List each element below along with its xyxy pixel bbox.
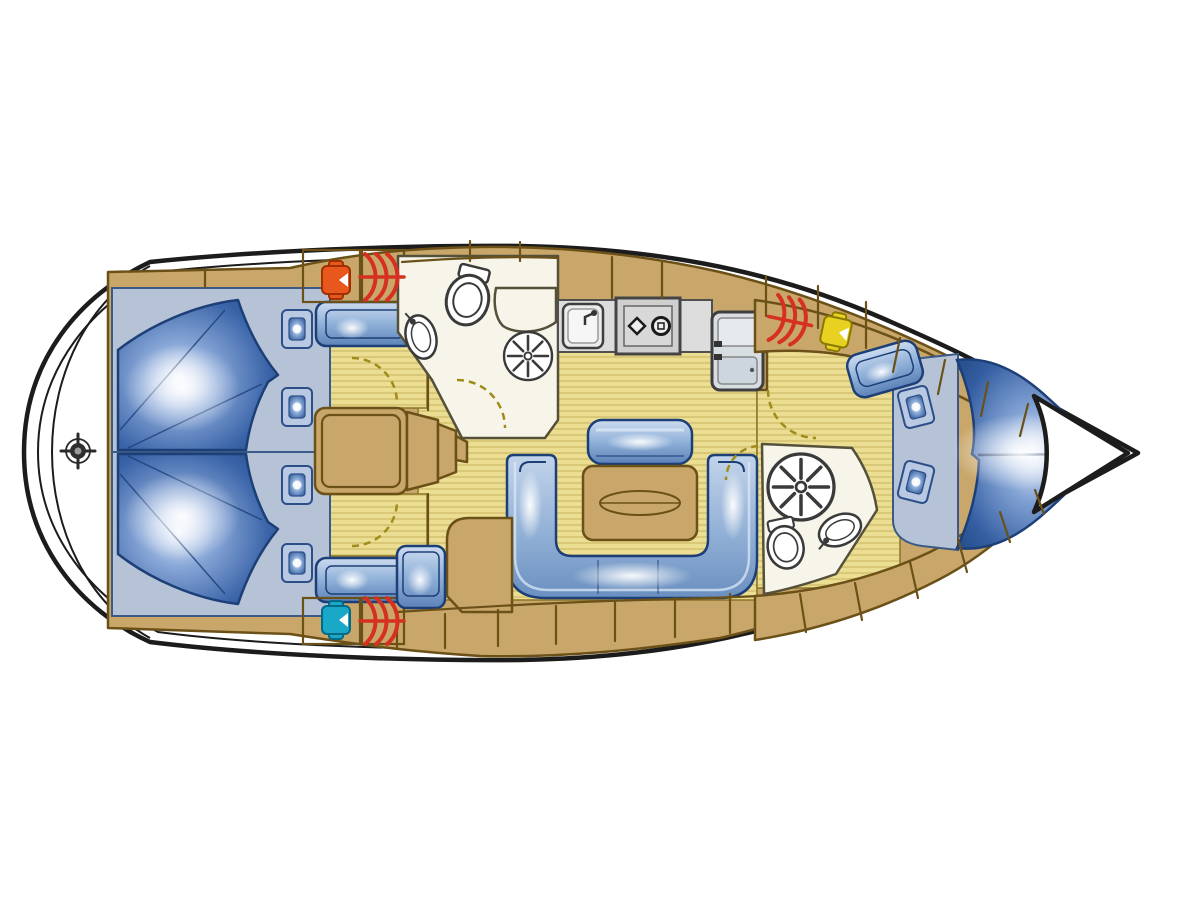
stove-icon	[616, 298, 680, 354]
pillow	[282, 310, 312, 348]
seacock-cyan-icon	[322, 601, 350, 639]
vanity-counter	[495, 288, 556, 332]
seat-back	[588, 420, 692, 464]
berth-highlight	[124, 472, 240, 560]
shower-drain-icon	[504, 332, 552, 380]
salon-table	[583, 466, 697, 540]
pillow	[282, 388, 312, 426]
settee-highlight	[518, 470, 542, 540]
anchor-locker	[1034, 396, 1128, 512]
salon-cabinet	[447, 518, 512, 612]
galley-sink	[563, 304, 603, 348]
engine-box	[315, 408, 407, 494]
shower-drain-icon	[768, 454, 834, 520]
aft-cabin-port-entry-floor	[330, 346, 427, 408]
seacock-orange-icon	[322, 261, 350, 299]
settee-highlight	[572, 562, 692, 590]
pillow	[282, 466, 312, 504]
salon-seat	[397, 546, 445, 608]
burner-ring-icon	[653, 318, 670, 335]
yacht-floor-plan-page	[0, 0, 1200, 899]
pillow	[282, 544, 312, 582]
settee-highlight	[721, 470, 745, 540]
companionway-step	[438, 424, 456, 479]
companionway-step	[456, 436, 467, 462]
companionway-step	[407, 412, 438, 490]
yacht-floor-plan	[0, 0, 1200, 899]
berth-highlight	[124, 344, 240, 432]
